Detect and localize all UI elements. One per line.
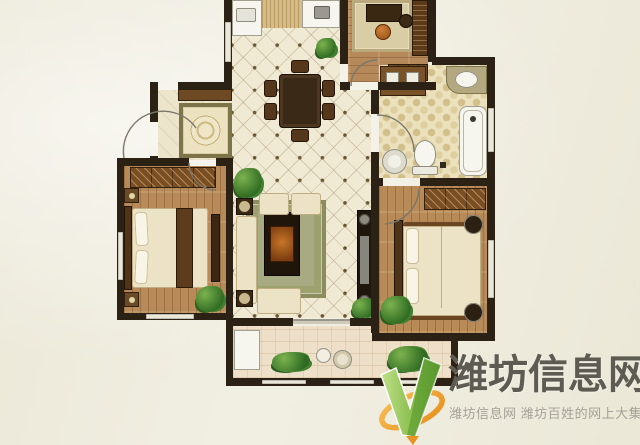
kitchen-prep-mat: [262, 0, 302, 28]
corner-table: [236, 290, 253, 307]
balcony-table: [333, 350, 352, 369]
nightstand: [124, 292, 139, 307]
sofa-bottom: [257, 288, 301, 314]
study-bookshelf: [412, 0, 428, 56]
dining-chair: [322, 80, 335, 97]
wall: [117, 158, 189, 166]
coffee-table-top: [270, 226, 294, 262]
foot-bench: [211, 214, 220, 282]
window: [118, 232, 123, 280]
bathtub: [459, 106, 487, 176]
wardrobe-master: [424, 188, 486, 210]
wall: [378, 82, 436, 90]
watermark-subtitle: 潍坊信息网 潍坊百姓的网上大集: [449, 403, 640, 422]
wall: [428, 0, 436, 62]
armchair: [259, 193, 289, 215]
round-side-table: [464, 215, 483, 234]
toilet-bowl: [414, 140, 436, 168]
bed-runner: [176, 208, 193, 288]
bathroom-cabinet: [380, 66, 426, 96]
screenshot-canvas: 潍坊信息网 潍坊信息网 潍坊百姓的网上大集: [0, 0, 640, 445]
pillow: [406, 268, 419, 304]
pillow: [406, 228, 419, 264]
window: [330, 380, 374, 384]
kitchen-sink: [236, 8, 256, 22]
dining-chair: [291, 60, 309, 73]
balcony-cabinet: [234, 330, 260, 370]
dining-chair: [322, 103, 335, 120]
bathtub-drain: [470, 116, 476, 122]
window: [225, 22, 231, 62]
corner-table-top: [239, 201, 250, 212]
wall: [178, 82, 232, 90]
floor-drain: [440, 162, 446, 168]
window: [400, 380, 434, 384]
balcony-stool: [316, 348, 331, 363]
study-side-stool: [399, 14, 413, 28]
corner-table-top: [239, 293, 250, 304]
wall: [226, 158, 233, 320]
wardrobe-left: [130, 167, 216, 188]
kitchen-stove: [314, 6, 330, 19]
wall: [371, 152, 379, 178]
window: [488, 108, 494, 152]
round-side-table: [464, 303, 483, 322]
pillow: [134, 212, 149, 247]
nightstand: [124, 188, 139, 203]
duvet-fold: [441, 226, 442, 308]
headboard-left: [124, 206, 132, 290]
wall: [340, 82, 350, 90]
wall: [372, 333, 495, 341]
wall: [350, 318, 372, 326]
dining-table: [279, 74, 321, 128]
watermark-title: 潍坊信息网: [448, 355, 640, 395]
wall: [432, 57, 490, 65]
wall: [150, 82, 158, 122]
balcony-sliding-door: [293, 319, 350, 324]
wall: [371, 186, 379, 333]
pillow: [134, 250, 149, 285]
study-chair: [375, 24, 391, 40]
tv-speaker: [359, 214, 370, 225]
foyer-medallion-rug: [179, 103, 232, 158]
tv-screen: [360, 236, 369, 284]
wall: [233, 318, 293, 326]
corner-table: [236, 198, 253, 215]
dining-chair: [264, 103, 277, 120]
dining-chair: [291, 129, 309, 142]
toilet-tank: [412, 166, 438, 175]
window: [488, 240, 494, 298]
wall: [371, 178, 383, 186]
wall: [371, 90, 379, 114]
leaf-tip: [406, 436, 419, 445]
study-desk: [366, 4, 402, 22]
swoosh: [377, 385, 447, 435]
wall: [420, 178, 495, 186]
vanity-sink: [455, 71, 478, 88]
wall: [340, 0, 348, 64]
wall: [226, 318, 233, 386]
washing-machine: [382, 149, 407, 174]
dining-chair: [264, 80, 277, 97]
armchair: [291, 193, 321, 215]
window: [262, 380, 306, 384]
window: [146, 314, 194, 319]
